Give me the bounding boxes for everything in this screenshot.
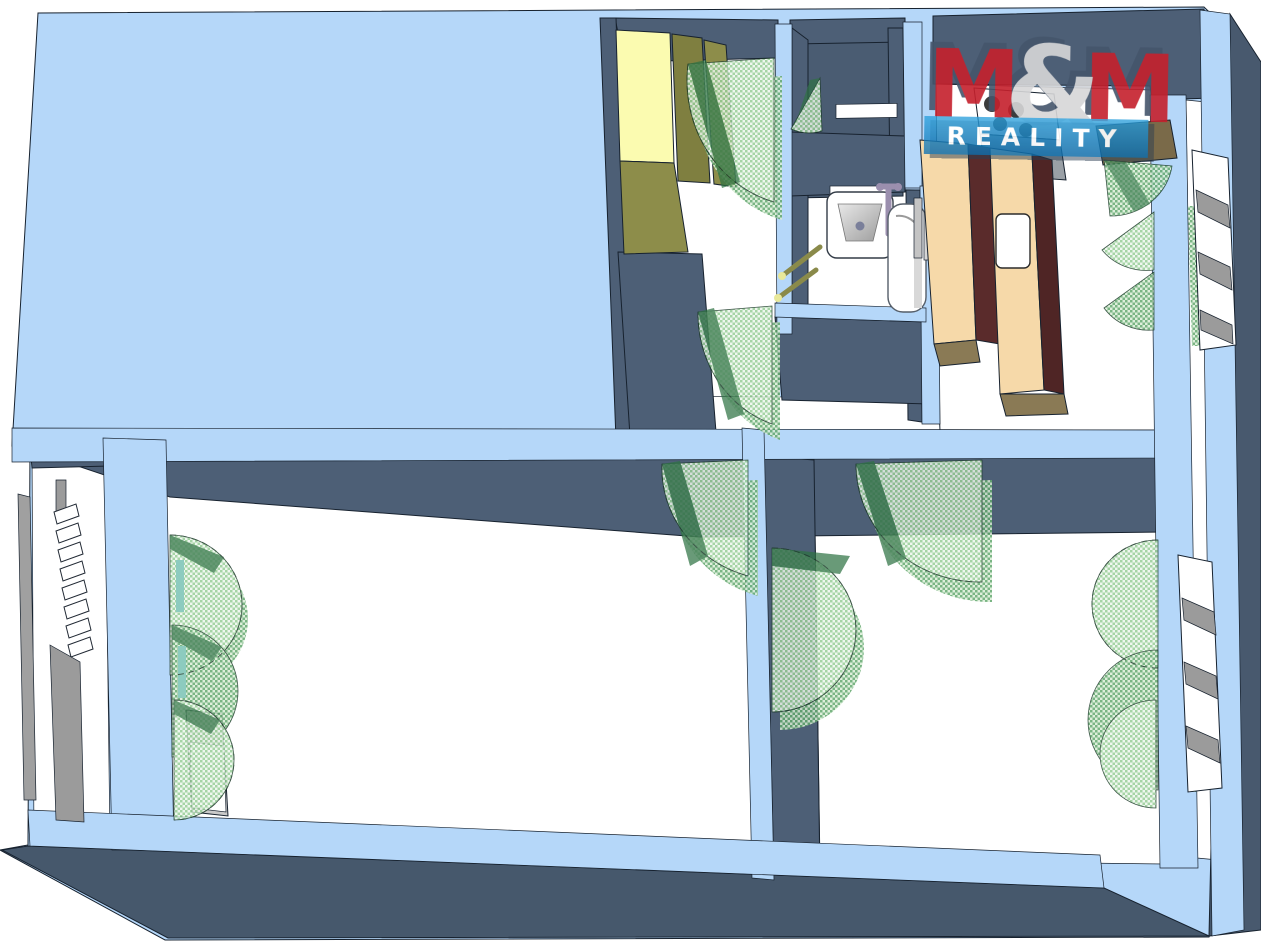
floorplan-svg: M M & M M & REALITY [0,0,1261,952]
bath-bottom-wall-face [775,317,930,404]
entry-door-edge-2 [178,646,186,698]
entry-door-edge [176,560,184,612]
mm-reality-logo: M M & M M & REALITY [920,14,1178,162]
kitchen-window [1192,150,1236,350]
kitchen-counter-left-base [934,340,980,366]
entry-wall-top [103,438,174,850]
wardrobe-top [616,30,674,163]
stair-post [56,480,66,512]
toilet-cistern [836,103,897,118]
wc-kitchen-wall-top [903,22,922,188]
floorplan-3d-render: M M & M M & REALITY [0,0,1261,952]
washbasin-drain [856,222,865,231]
stair-stringer [50,645,84,822]
logo-banner-text: REALITY [946,121,1126,153]
kitchen-sink [996,214,1030,268]
main-cross-wall-top [12,428,1165,462]
pipe [914,198,922,258]
kitchen-counter-right-base [1000,394,1068,416]
